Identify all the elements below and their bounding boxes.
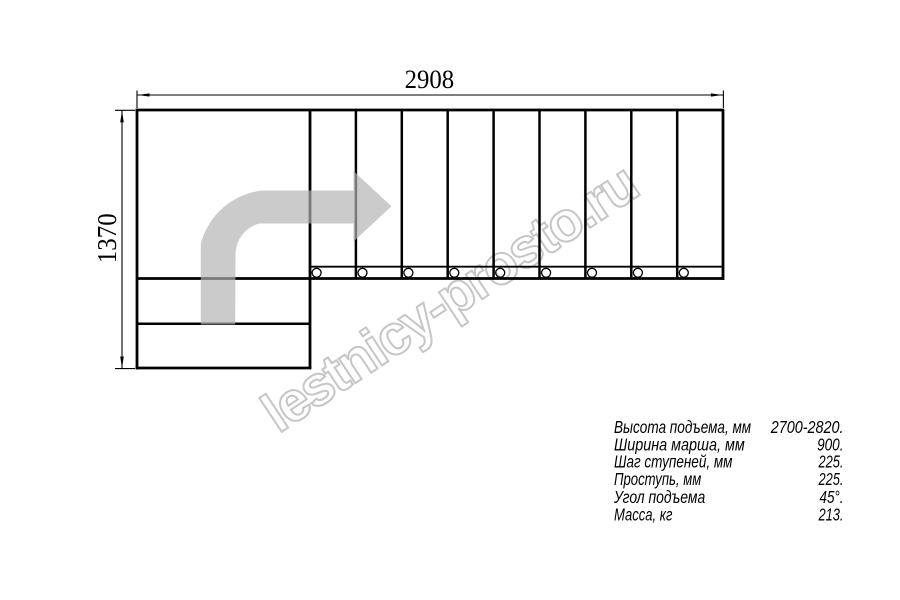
svg-text:2908: 2908 <box>405 64 455 94</box>
svg-text:213.: 213. <box>818 505 844 525</box>
svg-text:1370: 1370 <box>91 213 122 263</box>
svg-text:Масса, кг: Масса, кг <box>614 505 673 525</box>
